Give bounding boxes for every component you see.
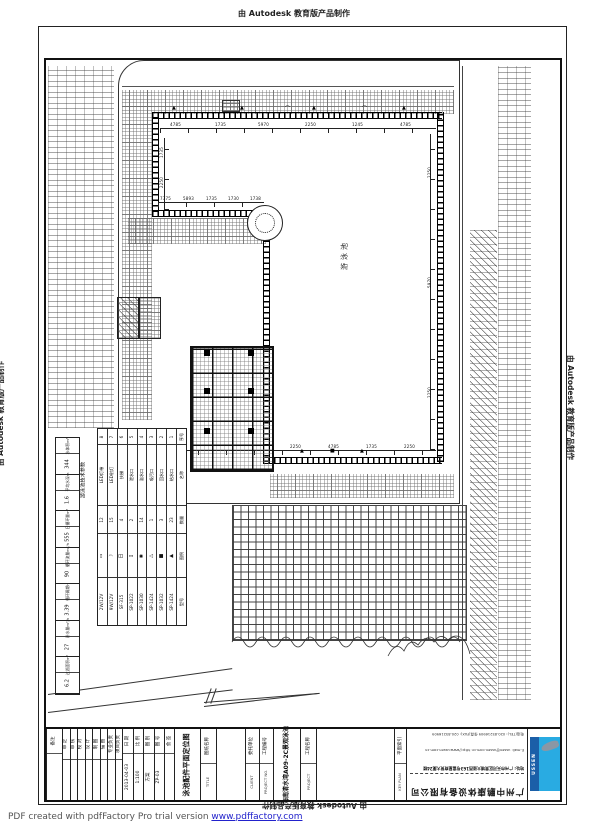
info-label: 工程名称 xyxy=(306,737,311,755)
info-label: 平面索引 xyxy=(398,737,403,755)
info-value: 方案 xyxy=(147,773,152,782)
planter-box xyxy=(117,297,139,339)
legend-item-column: 1 给水口 23 ▲ SP-1424 xyxy=(166,429,176,625)
autodesk-watermark-left: 由 Autodesk 教育版产品制作 xyxy=(0,361,6,466)
dim-label: 5970 xyxy=(258,122,269,127)
signature-label: 审 定 xyxy=(64,739,69,749)
dim-chain-right xyxy=(430,134,435,450)
info-value: 1:100 xyxy=(136,771,141,784)
tech-table-title-wrap: 游泳池技术参数 xyxy=(76,438,92,522)
tech-param-value: 344 xyxy=(65,459,70,469)
legend-header: 型号 xyxy=(179,597,183,605)
deck-inner-edge-line xyxy=(122,86,454,87)
info-value: 2013-04-03 xyxy=(126,764,131,790)
company-name: 广州中鹏康体设备有限公司 xyxy=(410,786,524,798)
sheet-title-cell: 泳池配件平面定位图 xyxy=(174,729,199,800)
legend-qty: 12 xyxy=(100,517,104,522)
dim-label: 5970 xyxy=(427,277,432,288)
tech-param-value: 3.39 xyxy=(65,605,70,616)
pavilion-post xyxy=(248,428,254,434)
empty-cell xyxy=(216,729,245,800)
sheet-title: 泳池配件平面定位图 xyxy=(184,733,191,796)
info-sublabel: KEY PLAN xyxy=(399,773,403,790)
pavilion-post xyxy=(204,350,210,356)
tech-param-row: 过滤面积m² 6.2 xyxy=(56,657,79,694)
right-paving-band-outer xyxy=(498,66,531,700)
pool-wall-top xyxy=(152,112,442,119)
legend-header-column: 序号 名称 数量 图例 型号 xyxy=(176,429,186,625)
deck-grid-left xyxy=(122,90,152,420)
legend-model: SP-1022 xyxy=(130,593,134,610)
signature-cell: 制 图 xyxy=(92,729,100,800)
legend-symbol-icon: 日 xyxy=(120,553,125,558)
legend-qty: 1 xyxy=(150,518,154,521)
dim-label: 2250 xyxy=(427,387,432,398)
sheet-title-label-cell: 图纸名称 TITLE xyxy=(200,729,216,800)
dim-label: 1735 xyxy=(215,122,226,127)
dim-label: 1245 xyxy=(352,122,363,127)
dim-label: 5893 xyxy=(183,196,194,201)
legend-item-column: 7 LED射灯 15 ☽ 9W/12V xyxy=(107,429,117,625)
fitting-symbol-icon: ■ xyxy=(330,449,335,454)
key-plan-cell: 平面索引 KEY PLAN xyxy=(394,729,406,800)
dim-label: 1735 xyxy=(206,196,217,201)
tech-param-label: 补水量m³/h xyxy=(66,618,70,638)
info-label: 图 别 xyxy=(147,736,152,746)
legend-no: 6 xyxy=(120,435,124,438)
legend-qty: 3 xyxy=(160,518,164,521)
legend-item-column: 8 LED灯带 12 ▭ 2W/12V xyxy=(98,429,107,625)
note-label: 备注 xyxy=(52,737,57,746)
date-cell: 日 期 2013-04-03 xyxy=(122,729,132,800)
project-label-cell: 工程名称 PROJECT xyxy=(300,729,316,800)
info-label: 工程编号 xyxy=(264,737,269,755)
logo-swoosh-icon xyxy=(540,739,560,753)
legend-model: SF-315 xyxy=(120,594,124,609)
signature-label: 描 图 xyxy=(102,739,107,749)
dim-label: 1730 xyxy=(228,196,239,201)
project-name: 海南清水湾A09-2C景观泳池 xyxy=(284,725,290,803)
signature-cell: 专业负责 xyxy=(107,729,115,800)
legend-no: 4 xyxy=(140,435,144,438)
scale-cell: 比 例 1:100 xyxy=(133,729,143,800)
legend-symbol-icon: △ xyxy=(149,554,154,558)
legend-model: SP-1032 xyxy=(160,593,164,610)
tech-param-label: 循环周期h xyxy=(66,583,70,601)
deck-grid-bottom xyxy=(270,474,454,498)
company-logo-cell: USSEN xyxy=(527,729,560,800)
legend-symbol-icon: ■ xyxy=(159,553,164,558)
drain-detail xyxy=(222,100,240,112)
legend-no: 2 xyxy=(160,435,164,438)
drawing-sheet: 由 Autodesk 教育版产品制作 由 Autodesk 教育版产品制作 由 … xyxy=(0,0,600,828)
pool-label-wrap: 游泳池 xyxy=(330,225,360,285)
tech-param-value: 555 xyxy=(65,532,70,542)
info-label: 图 号 xyxy=(157,736,162,746)
project-no-cell: 工程编号 PROJECT NO. xyxy=(259,729,273,800)
signature-label: 项目负责 xyxy=(117,735,122,753)
shrub-outline xyxy=(388,634,470,662)
signature-label: 专业负责 xyxy=(109,735,114,753)
tech-param-label: 平均水深m xyxy=(66,473,70,492)
pdffactory-link[interactable]: www.pdffactory.com xyxy=(211,812,302,822)
ussen-logo-strip: USSEN xyxy=(530,737,539,791)
legend-symbol-icon: ▯ xyxy=(130,554,135,557)
title-block: 备注 审 定 审 核 校 对 设 计 制 图 描 图 专业负责 项目负责 日 期… xyxy=(46,727,560,800)
legend-model: 2W/12V xyxy=(100,593,104,609)
tech-param-value: 6.2 xyxy=(65,679,70,687)
legend-item-column: 6 扶梯 4 日 SF-315 xyxy=(117,429,127,625)
deck-grid-notch xyxy=(128,218,266,244)
info-sublabel: TITLE xyxy=(206,777,210,787)
legend-header: 序号 xyxy=(179,432,183,440)
phase-cell: 图 别 方案 xyxy=(143,729,153,800)
fitting-symbol-icon: ▲ xyxy=(360,449,364,454)
pavilion-post xyxy=(204,388,210,394)
dim-label: 4785 xyxy=(400,122,411,127)
legend-name: 泄水口 xyxy=(130,469,134,482)
company-address: 地址: 广州市天河区黄埔大道西163号富星商贸大厦24楼 xyxy=(410,765,524,774)
signature-label: 校 对 xyxy=(79,739,84,749)
tech-param-row: 循环流量m³/h 90 xyxy=(56,548,79,585)
pdf-footer: PDF created with pdfFactory Pro trial ve… xyxy=(8,812,302,822)
dim-label: 4785 xyxy=(170,122,181,127)
dim-label: 1738 xyxy=(250,196,261,201)
legend-model: SP-1424 xyxy=(150,593,154,610)
company-contact-web: E-mail: ussen@ussen.com.cn http://www.us… xyxy=(410,748,524,752)
info-label: 委托单位 xyxy=(250,737,255,755)
dim-label: 7375 xyxy=(160,196,171,201)
info-sublabel: CLIENT xyxy=(250,775,254,788)
legend-symbol-icon: ☽ xyxy=(110,553,115,557)
pavilion-post xyxy=(248,388,254,394)
info-sublabel: PROJECT NO. xyxy=(264,770,268,795)
legend-qty: 2 xyxy=(130,518,134,521)
fitting-symbol-icon: ▲ xyxy=(240,106,244,111)
client-cell: 委托单位 CLIENT xyxy=(245,729,259,800)
legend-header: 名称 xyxy=(179,471,183,479)
legend-name: 溢水口 xyxy=(140,469,144,482)
left-paving-band xyxy=(48,66,114,428)
fitting-symbol-icon: ▲ xyxy=(312,106,316,111)
fitting-symbol-icon: ⌒ xyxy=(362,107,367,112)
signature-cell: 设 计 xyxy=(85,729,93,800)
legend-no: 7 xyxy=(110,435,114,438)
legend-name: LED灯带 xyxy=(100,467,104,484)
tech-param-row: 循环周期h 3.39 xyxy=(56,584,79,621)
legend-model: SP-1030 xyxy=(140,593,144,610)
info-sublabel: PROJECT xyxy=(307,774,311,790)
signature-label: 审 核 xyxy=(72,739,77,749)
legend-item-column: 4 溢水口 14 ◉ SP-1030 xyxy=(137,429,147,625)
pool-wall-left-upper xyxy=(152,112,159,212)
autodesk-watermark-top: 由 Autodesk 教育版产品制作 xyxy=(238,8,350,19)
pool-corner-circle-inner xyxy=(255,213,275,233)
dim-label: 2250 xyxy=(427,167,432,178)
legend-symbol-icon: ▭ xyxy=(100,553,105,558)
company-info-cell: 广州中鹏康体设备有限公司 地址: 广州市天河区黄埔大道西163号富星商贸大厦24… xyxy=(406,729,527,800)
info-label: 会 签 xyxy=(167,736,172,746)
planter-box xyxy=(139,297,161,339)
legend-qty: 15 xyxy=(110,517,114,522)
legend-model: 9W/12V xyxy=(110,593,114,609)
tech-param-value: 27 xyxy=(65,643,70,649)
legend-name: 吸污口 xyxy=(150,469,154,482)
signature-label: 设 计 xyxy=(87,739,92,749)
legend-symbol-icon: ▲ xyxy=(169,554,174,558)
signature-cell: 项目负责 xyxy=(115,729,123,800)
countersign-cell: 会 签 xyxy=(164,729,174,800)
pavilion-structure xyxy=(190,346,274,472)
legend-qty: 23 xyxy=(170,517,174,522)
legend-no: 8 xyxy=(100,435,104,438)
signature-cell: 校 对 xyxy=(77,729,85,800)
info-label: 比 例 xyxy=(136,736,141,746)
ussen-logo-text: USSEN xyxy=(532,753,537,775)
legend-qty: 14 xyxy=(140,517,144,522)
signature-cell: 审 定 xyxy=(62,729,70,800)
dim-label: 2250 xyxy=(305,122,316,127)
company-contact-phone: 电话(TEL): 020-85216909 传真(FAX): 020-85216… xyxy=(410,731,524,736)
pool-wall-right xyxy=(437,112,444,462)
legend-symbol-icon: ◉ xyxy=(140,553,145,557)
tech-param-label: 过滤面积m² xyxy=(66,655,70,675)
tech-param-row: 补水量m³/h 27 xyxy=(56,621,79,658)
legend-item-column: 3 吸污口 1 △ SP-1424 xyxy=(146,429,156,625)
legend-item-column: 2 回水口 3 ■ SP-1032 xyxy=(156,429,166,625)
signature-cell: 审 核 xyxy=(70,729,78,800)
legend-header: 图例 xyxy=(179,551,183,559)
signature-label: 制 图 xyxy=(94,739,99,749)
legend-name: LED射灯 xyxy=(110,467,114,484)
tech-table-title: 游泳池技术参数 xyxy=(81,462,86,498)
dim-label: 1735 xyxy=(159,147,164,158)
dim-chain-top xyxy=(160,128,436,133)
dim-label: 2250 xyxy=(404,444,415,449)
bottom-paving-grid xyxy=(232,505,467,641)
pool-wall-bottom xyxy=(263,457,442,464)
tech-param-label: 水体积m³ xyxy=(66,437,70,454)
legend-model: SP-1424 xyxy=(170,593,174,610)
info-value: ZP-03 xyxy=(157,770,162,783)
sheet-no-cell: 图 号 ZP-03 xyxy=(154,729,164,800)
title-block-note-cell: 备注 xyxy=(46,729,62,800)
legend-name: 扶梯 xyxy=(120,471,124,479)
info-label: 图纸名称 xyxy=(206,737,211,755)
tech-param-label: 日循环量m³ xyxy=(66,508,70,528)
legend-qty: 4 xyxy=(120,518,124,521)
pavilion-post xyxy=(248,350,254,356)
pavilion-post xyxy=(204,428,210,434)
ussen-logo: USSEN xyxy=(530,737,560,791)
fitting-symbol-icon: ▲ xyxy=(300,449,304,454)
dim-chain-notch xyxy=(158,202,264,207)
legend-item-column: 5 泄水口 2 ▯ SP-1022 xyxy=(127,429,137,625)
legend-table: 8 LED灯带 12 ▭ 2W/12V 7 LED射灯 15 ☽ 9W/12V … xyxy=(97,428,187,626)
legend-no: 5 xyxy=(130,435,134,438)
fitting-symbol-icon: ▲ xyxy=(172,106,176,111)
legend-no: 3 xyxy=(150,435,154,438)
pdf-footer-text: PDF created with pdfFactory Pro trial ve… xyxy=(8,812,211,822)
tech-param-value: 90 xyxy=(65,570,70,576)
tech-param-value: 1.6 xyxy=(65,496,70,504)
dim-label: 2250 xyxy=(159,177,164,188)
info-label: 日 期 xyxy=(126,736,131,746)
pool-label: 游泳池 xyxy=(342,240,349,270)
signature-cell: 描 图 xyxy=(100,729,108,800)
company-info-flipped: 广州中鹏康体设备有限公司 地址: 广州市天河区黄埔大道西163号富星商贸大厦24… xyxy=(407,729,527,800)
fitting-symbol-icon: ⌒ xyxy=(285,107,290,112)
right-paving-band-inner xyxy=(470,230,497,700)
empty-cell xyxy=(316,729,394,800)
legend-no: 1 xyxy=(170,435,174,438)
dim-label: 1735 xyxy=(366,444,377,449)
legend-name: 给水口 xyxy=(170,469,174,482)
legend-header: 数量 xyxy=(179,515,183,523)
fitting-symbol-icon: ▲ xyxy=(402,106,406,111)
legend-name: 回水口 xyxy=(160,469,164,482)
project-name-cell: 海南清水湾A09-2C景观泳池 xyxy=(273,729,300,800)
